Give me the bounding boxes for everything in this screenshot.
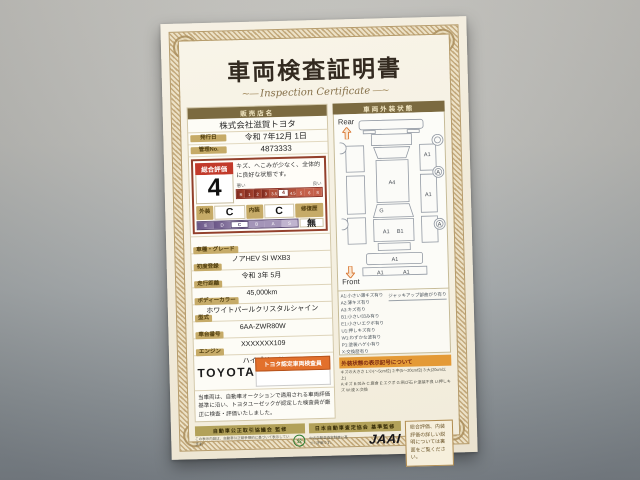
manage-no-row: 管理No. 4873333 — [189, 142, 328, 158]
field-label: 車台番号 — [195, 331, 223, 339]
council-note: この表示内容は、自動車公正競争規約に基づいて表示しています。 — [195, 435, 291, 448]
scale-cell: 6 — [305, 188, 314, 196]
evaluation-comment: キズ、へこみが少なく、全体的に良好な状態です。 — [235, 160, 323, 183]
fair-trade-mark-icon: 公 — [293, 434, 305, 446]
svg-text:A1: A1 — [392, 257, 399, 263]
svg-text:A: A — [436, 170, 440, 176]
scale-cell: 1 — [245, 190, 254, 198]
svg-text:B1: B1 — [397, 229, 404, 235]
evaluation-top: 総合評価 4 キズ、へこみが少なく、全体的に良好な状態です。 悪い 良い — [195, 160, 323, 204]
photo-background: 車両検査証明書 ~— Inspection Certificate —~ 販売店… — [0, 0, 640, 480]
overall-score-value: 4 — [195, 174, 234, 203]
jack-up-note: ジャッキアップ部曲がり有り — [388, 292, 446, 302]
scale-cell: 5 — [297, 188, 306, 196]
certificate-sheet: 車両検査証明書 ~— Inspection Certificate —~ 販売店… — [178, 34, 460, 443]
council-body: この表示内容は、自動車公正競争規約に基づいて表示しています。 公 — [195, 433, 305, 449]
exterior-grade: C — [214, 204, 245, 219]
grade-cell: B — [248, 220, 265, 227]
legend-item: X:交換歴有り — [342, 348, 385, 356]
scale-cell: 3 — [262, 189, 271, 197]
svg-text:A: A — [438, 222, 442, 228]
grade-scale-row: E D C B A S 無 — [197, 217, 324, 229]
field-label: エンジン — [196, 348, 224, 356]
grade-cell-selected: C — [230, 220, 249, 227]
interior-grade: C — [264, 203, 295, 218]
manage-no-label: 管理No. — [191, 146, 227, 154]
toyota-logo: TOYOTA — [197, 365, 255, 381]
certificate-title: 車両検査証明書 — [185, 48, 444, 89]
disclaimer-text: 当車両は、自動車オークションで適用される車両評価基準に沿い、トヨタユーゼックが認… — [195, 386, 335, 421]
overall-scale-bar: R 1 2 3 3.5 4 4.5 5 6 S — [236, 187, 323, 199]
legend-panel: A1:小さい薄キズ有り A2:薄キズ有り A3:キズ有り B1:小さい凹み有り … — [337, 289, 451, 356]
symbol-note-line: A:キズ B:凹み C:腐食 E:エクボ G:飛び石 P:塗装不良 U:押しキズ… — [341, 379, 451, 394]
grade-scale-bar: E D C B A S — [197, 218, 299, 230]
field-label: ボディーカラー — [195, 297, 239, 306]
grade-cell: A — [265, 219, 282, 226]
scale-cell: 2 — [253, 189, 262, 197]
scale-cell-selected: 4 — [278, 189, 289, 197]
association-note: 中古自動車査定制度に基づく評価です。 — [309, 435, 349, 447]
legend-list: A1:小さい薄キズ有り A2:薄キズ有り A3:キズ有り B1:小さい凹み有り … — [340, 292, 384, 353]
repair-history-value: 無 — [299, 217, 323, 227]
grade-cell: S — [281, 219, 298, 226]
svg-text:G: G — [379, 208, 383, 214]
scale-cell: 4.5 — [288, 189, 297, 197]
symbol-note-block: 外装状態の表示記号について キズの大きさ 1:小(〜5cm位) 2:中(5〜20… — [339, 355, 452, 394]
field-label: 車種・グレード — [193, 246, 238, 255]
evaluation-box: 総合評価 4 キズ、へこみが少なく、全体的に良好な状態です。 悪い 良い — [191, 156, 328, 234]
inspector-stamp-box — [255, 369, 330, 386]
appraisal-association-block: 日本自動車査定協会 基準監修 中古自動車査定制度に基づく評価です。 JAAI — [309, 421, 402, 448]
fair-trade-council-block: 自動車公正取引協議会 監修 この表示内容は、自動車公正競争規約に基づいて表示して… — [195, 423, 306, 449]
vehicle-info-column: 販売店名 株式会社滋賀トヨタ 発行日 令和 7年12月 1日 管理No. 487… — [187, 104, 336, 423]
overall-score-block: 総合評価 4 — [195, 162, 234, 203]
jaai-logo: JAAI — [369, 431, 402, 447]
inspector-cert-block: トヨタ認定車両検査員 — [255, 355, 331, 386]
issue-date-label: 発行日 — [190, 134, 226, 142]
field-label: 型式 — [195, 314, 212, 322]
scale-cell: S — [313, 188, 322, 196]
exterior-label: 外装 — [196, 205, 213, 219]
manage-no-value: 4873333 — [227, 143, 326, 155]
flourish-left: ~— — [241, 88, 260, 99]
content-columns: 販売店名 株式会社滋賀トヨタ 発行日 令和 7年12月 1日 管理No. 487… — [187, 101, 453, 423]
exterior-condition-column: 車両外装状態 Rear Front — [332, 101, 452, 394]
grade-cell: D — [214, 221, 231, 228]
scale-cell: 3.5 — [270, 189, 279, 197]
interior-label: 内装 — [246, 204, 263, 218]
association-body: 中古自動車査定制度に基づく評価です。 JAAI — [309, 431, 401, 448]
certificate-paper: 車両検査証明書 ~— Inspection Certificate —~ 販売店… — [160, 16, 477, 460]
svg-text:A1: A1 — [425, 192, 432, 198]
svg-text:A1: A1 — [383, 229, 390, 235]
back-side-note: 総合評価、内装評価の詳しい説明については裏面をご覧ください。 — [405, 420, 454, 467]
grade-cell: E — [198, 221, 215, 228]
evaluation-detail: キズ、へこみが少なく、全体的に良好な状態です。 悪い 良い R 1 2 3 — [235, 160, 323, 203]
svg-text:A1: A1 — [424, 152, 431, 158]
svg-text:A4: A4 — [389, 180, 396, 186]
car-diagram-panel: Rear Front — [333, 112, 450, 292]
scale-cell: R — [237, 190, 246, 198]
symbol-note-lines: キズの大きさ 1:小(〜5cm位) 2:中(5〜20cm位) 3:大(20cm以… — [339, 366, 452, 394]
field-label: 初度登録 — [194, 263, 222, 271]
flourish-right: —~ — [370, 85, 389, 96]
footer-band: 自動車公正取引協議会 監修 この表示内容は、自動車公正競争規約に基づいて表示して… — [195, 420, 454, 472]
field-label: 走行距離 — [194, 280, 222, 288]
car-diagram: A1 A4 A1 G A1 B1 A1 A1 A1 A A — [339, 115, 447, 288]
svg-text:A1: A1 — [403, 270, 410, 276]
svg-text:A1: A1 — [377, 270, 384, 276]
